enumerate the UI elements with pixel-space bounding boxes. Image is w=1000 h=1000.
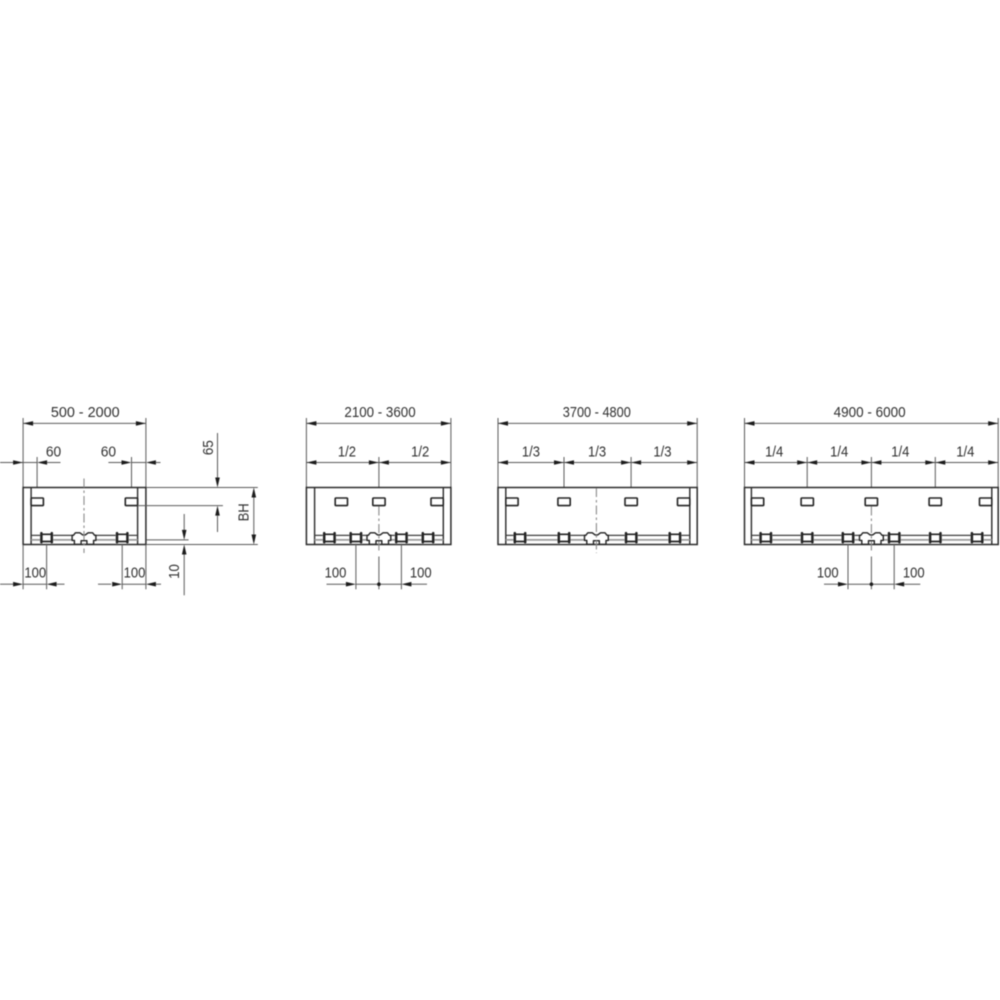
svg-text:1/4: 1/4 xyxy=(830,443,848,460)
svg-text:100: 100 xyxy=(24,564,46,581)
svg-text:1/3: 1/3 xyxy=(653,443,671,460)
svg-text:100: 100 xyxy=(124,564,146,581)
svg-text:10: 10 xyxy=(165,564,182,579)
svg-text:3700 - 4800: 3700 - 4800 xyxy=(563,403,631,420)
svg-text:1/3: 1/3 xyxy=(522,443,540,460)
svg-text:100: 100 xyxy=(410,564,432,581)
svg-text:BH: BH xyxy=(235,503,252,521)
svg-text:100: 100 xyxy=(903,564,925,581)
svg-text:65: 65 xyxy=(201,440,218,455)
svg-text:100: 100 xyxy=(325,564,347,581)
svg-text:1/2: 1/2 xyxy=(338,443,356,460)
svg-text:100: 100 xyxy=(817,564,839,581)
svg-text:4900 - 6000: 4900 - 6000 xyxy=(834,404,906,421)
svg-text:2100 - 3600: 2100 - 3600 xyxy=(344,404,415,421)
svg-text:1/4: 1/4 xyxy=(765,443,783,460)
svg-text:1/2: 1/2 xyxy=(411,443,429,460)
svg-text:1/3: 1/3 xyxy=(588,443,606,460)
svg-text:1/4: 1/4 xyxy=(891,443,909,460)
svg-text:500 - 2000: 500 - 2000 xyxy=(51,405,120,421)
svg-text:1/4: 1/4 xyxy=(956,443,974,460)
svg-text:60: 60 xyxy=(101,444,116,461)
svg-text:60: 60 xyxy=(46,444,61,461)
